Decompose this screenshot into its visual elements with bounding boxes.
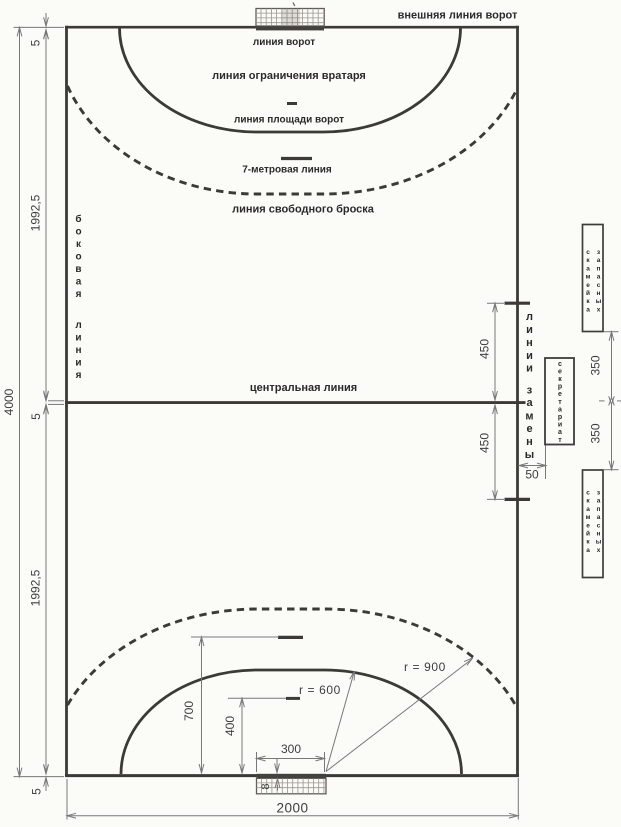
svg-text:р: р bbox=[558, 414, 562, 421]
svg-text:о: о bbox=[75, 227, 81, 238]
svg-text:н: н bbox=[75, 345, 81, 356]
svg-text:а: а bbox=[558, 429, 562, 436]
svg-text:и: и bbox=[526, 324, 533, 336]
svg-text:н: н bbox=[526, 436, 533, 448]
svg-text:я: я bbox=[76, 289, 82, 300]
svg-text:с: с bbox=[597, 282, 601, 289]
svg-text:700: 700 bbox=[182, 701, 196, 721]
svg-text:з: з bbox=[527, 385, 533, 397]
svg-text:ы: ы bbox=[596, 298, 602, 305]
svg-text:м: м bbox=[586, 514, 591, 521]
svg-text:7-метровая линия: 7-метровая линия bbox=[242, 165, 332, 176]
svg-text:1992,5: 1992,5 bbox=[29, 569, 43, 606]
svg-text:х: х bbox=[597, 306, 601, 313]
svg-text:т: т bbox=[558, 437, 562, 444]
svg-text:ы: ы bbox=[525, 449, 534, 461]
svg-text:м: м bbox=[586, 274, 591, 281]
svg-text:е: е bbox=[586, 522, 590, 529]
svg-text:и: и bbox=[75, 333, 81, 344]
svg-text:а: а bbox=[597, 274, 601, 281]
svg-text:линия свободного броска: линия свободного броска bbox=[232, 204, 375, 216]
svg-text:линия площади ворот: линия площади ворот bbox=[234, 115, 344, 126]
svg-text:х: х bbox=[597, 547, 601, 554]
svg-text:о: о bbox=[75, 252, 81, 263]
svg-text:и: и bbox=[526, 363, 533, 375]
svg-text:с: с bbox=[586, 249, 590, 256]
svg-text:л: л bbox=[75, 320, 81, 331]
svg-text:линия ограничения вратаря: линия ограничения вратаря bbox=[212, 70, 366, 82]
svg-text:и: и bbox=[75, 358, 81, 369]
svg-text:50: 50 bbox=[525, 468, 539, 482]
svg-text:8: 8 bbox=[260, 783, 272, 789]
svg-text:линия ворот: линия ворот bbox=[253, 37, 315, 48]
svg-text:350: 350 bbox=[589, 355, 603, 375]
svg-text:400: 400 bbox=[223, 716, 237, 736]
svg-text:е: е bbox=[558, 368, 562, 375]
svg-text:к: к bbox=[558, 376, 562, 383]
svg-text:п: п bbox=[597, 506, 601, 513]
svg-text:с: с bbox=[558, 361, 562, 368]
svg-text:5: 5 bbox=[29, 39, 43, 46]
svg-text:300: 300 bbox=[281, 742, 301, 756]
svg-text:т: т bbox=[558, 399, 562, 406]
svg-text:1992,5: 1992,5 bbox=[29, 194, 43, 231]
svg-text:r = 600: r = 600 bbox=[299, 683, 341, 697]
svg-text:5: 5 bbox=[30, 788, 44, 795]
svg-text:р: р bbox=[558, 384, 562, 391]
svg-text:н: н bbox=[597, 531, 601, 538]
svg-text:450: 450 bbox=[478, 339, 492, 359]
svg-text:в: в bbox=[75, 264, 81, 275]
svg-text:я: я bbox=[76, 370, 82, 381]
svg-text:а: а bbox=[597, 257, 601, 264]
svg-text:а: а bbox=[586, 306, 590, 313]
svg-text:л: л bbox=[526, 311, 533, 323]
svg-text:r = 900: r = 900 bbox=[404, 660, 446, 674]
svg-text:350: 350 bbox=[589, 423, 603, 443]
svg-text:е: е bbox=[558, 391, 562, 398]
svg-text:и: и bbox=[558, 422, 562, 429]
svg-text:а: а bbox=[558, 406, 562, 413]
svg-text:а: а bbox=[586, 506, 590, 513]
svg-text:с: с bbox=[597, 522, 601, 529]
svg-text:п: п bbox=[597, 265, 601, 272]
svg-text:б: б bbox=[75, 213, 81, 225]
svg-text:й: й bbox=[586, 289, 590, 297]
svg-text:а: а bbox=[597, 514, 601, 521]
svg-text:а: а bbox=[76, 277, 82, 288]
svg-text:и: и bbox=[526, 350, 533, 362]
svg-text:а: а bbox=[586, 547, 590, 554]
svg-text:е: е bbox=[586, 282, 590, 289]
svg-text:2000: 2000 bbox=[276, 801, 308, 816]
svg-text:м: м bbox=[525, 411, 533, 423]
svg-text:а: а bbox=[597, 498, 601, 505]
svg-text:е: е bbox=[526, 423, 532, 435]
svg-text:й: й bbox=[586, 530, 590, 538]
svg-text:а: а bbox=[586, 265, 590, 272]
svg-text:центральная линия: центральная линия bbox=[250, 382, 357, 394]
svg-text:а: а bbox=[526, 397, 533, 409]
svg-text:4000: 4000 bbox=[2, 388, 16, 415]
svg-text:5: 5 bbox=[29, 413, 43, 420]
svg-text:с: с bbox=[586, 490, 590, 497]
svg-text:450: 450 bbox=[478, 433, 492, 453]
svg-text:ы: ы bbox=[596, 539, 602, 546]
svg-text:н: н bbox=[526, 337, 533, 349]
svg-text:внешняя линия ворот: внешняя линия ворот bbox=[398, 10, 518, 22]
svg-text:н: н bbox=[597, 290, 601, 297]
